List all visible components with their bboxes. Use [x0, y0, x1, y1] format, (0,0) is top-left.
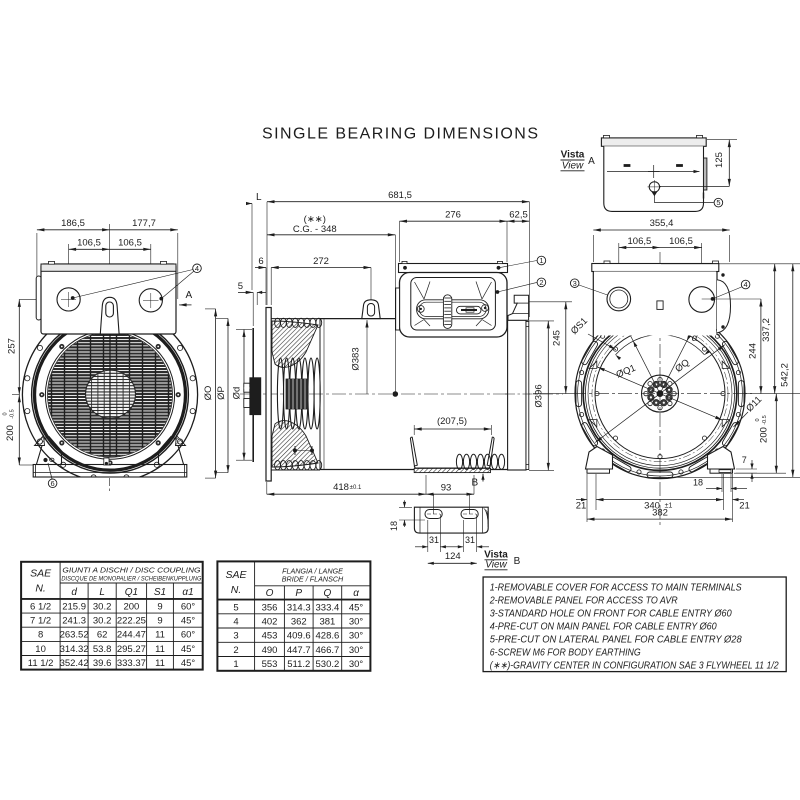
- svg-text:553: 553: [262, 659, 278, 670]
- svg-text:177,7: 177,7: [132, 218, 156, 229]
- svg-text:31: 31: [429, 535, 439, 545]
- svg-text:0: 0: [755, 418, 761, 421]
- svg-text:α1: α1: [182, 587, 193, 598]
- svg-text:B: B: [471, 478, 478, 489]
- svg-text:60°: 60°: [181, 601, 196, 612]
- svg-text:314.3: 314.3: [287, 602, 311, 613]
- svg-text:6-SCREW M6 FOR BODY EARTHING: 6-SCREW M6 FOR BODY EARTHING: [490, 648, 641, 659]
- svg-text:7: 7: [742, 455, 747, 465]
- svg-text:382: 382: [652, 508, 668, 519]
- svg-text:DISCQUE DE MONOPALIER / SCHEIB: DISCQUE DE MONOPALIER / SCHEIBENKUPPLUNG: [61, 576, 201, 583]
- svg-text:d: d: [71, 587, 77, 598]
- svg-text:490: 490: [262, 645, 278, 656]
- svg-text:P: P: [295, 588, 302, 599]
- svg-text:BRIDE / FLANSCH: BRIDE / FLANSCH: [282, 575, 344, 584]
- svg-text:8: 8: [38, 630, 43, 641]
- svg-text:453: 453: [262, 631, 278, 642]
- svg-text:ØP: ØP: [216, 386, 227, 400]
- svg-text:31: 31: [465, 535, 475, 545]
- svg-text:5-PRE-CUT ON LATERAL PANEL FOR: 5-PRE-CUT ON LATERAL PANEL FOR CABLE ENT…: [490, 635, 742, 646]
- svg-text:5: 5: [716, 198, 720, 207]
- svg-text:2: 2: [539, 278, 543, 287]
- svg-text:7 1/2: 7 1/2: [30, 616, 51, 627]
- svg-text:45°: 45°: [181, 644, 196, 655]
- svg-text:GIUNTI A DISCHI / DISC COUPLIN: GIUNTI A DISCHI / DISC COUPLING: [62, 566, 200, 575]
- svg-text:3-STANDARD HOLE ON FRONT FOR C: 3-STANDARD HOLE ON FRONT FOR CABLE ENTRY…: [490, 609, 732, 620]
- svg-text:1: 1: [539, 256, 543, 265]
- svg-text:352.42: 352.42: [60, 658, 89, 669]
- svg-text:362: 362: [291, 617, 307, 628]
- svg-text:A: A: [588, 156, 595, 167]
- svg-text:257: 257: [7, 338, 18, 354]
- svg-text:2: 2: [233, 645, 238, 656]
- svg-text:333.37: 333.37: [117, 658, 146, 669]
- svg-text:124: 124: [445, 551, 461, 562]
- svg-text:45°: 45°: [181, 658, 196, 669]
- svg-text:3: 3: [573, 279, 577, 288]
- svg-text:45°: 45°: [181, 616, 196, 627]
- svg-text:L: L: [99, 587, 105, 598]
- svg-text:263.52: 263.52: [60, 630, 89, 641]
- svg-text:45°: 45°: [349, 602, 364, 613]
- svg-text:Vista: Vista: [561, 150, 585, 161]
- svg-text:62,5: 62,5: [509, 210, 528, 221]
- svg-text:N.: N.: [35, 583, 46, 595]
- svg-text:10: 10: [35, 644, 46, 655]
- svg-text:Ø383: Ø383: [351, 347, 362, 370]
- svg-text:C.G. - 348: C.G. - 348: [293, 224, 337, 235]
- svg-text:L: L: [256, 192, 262, 203]
- svg-text:186,5: 186,5: [61, 218, 85, 229]
- svg-text:18: 18: [693, 478, 703, 488]
- svg-text:View: View: [485, 560, 507, 571]
- svg-text:542,2: 542,2: [779, 363, 790, 387]
- svg-text:511.2: 511.2: [287, 659, 310, 670]
- svg-text:30.2: 30.2: [93, 601, 112, 612]
- svg-text:Q1: Q1: [125, 587, 138, 598]
- svg-text:106,5: 106,5: [628, 236, 652, 247]
- svg-text:4: 4: [744, 280, 748, 289]
- svg-text:272: 272: [313, 256, 329, 267]
- svg-text:93: 93: [441, 483, 452, 494]
- svg-text:106,5: 106,5: [669, 236, 693, 247]
- svg-text:530.2: 530.2: [316, 659, 340, 670]
- svg-text:30°: 30°: [349, 631, 364, 642]
- svg-text:S1: S1: [154, 587, 166, 598]
- svg-text:337,2: 337,2: [761, 318, 772, 342]
- svg-text:Ød: Ød: [232, 387, 243, 400]
- svg-text:106,5: 106,5: [118, 238, 142, 249]
- svg-text:447.7: 447.7: [287, 645, 311, 656]
- svg-text:11: 11: [155, 658, 165, 669]
- svg-text:3: 3: [233, 631, 238, 642]
- svg-text:222.25: 222.25: [117, 616, 146, 627]
- svg-text:355,4: 355,4: [650, 218, 674, 229]
- svg-text:6: 6: [258, 256, 263, 267]
- svg-text:SINGLE BEARING DIMENSIONS: SINGLE BEARING DIMENSIONS: [262, 125, 538, 142]
- svg-text:30°: 30°: [349, 659, 364, 670]
- svg-text:Q: Q: [324, 588, 332, 599]
- svg-text:62: 62: [97, 630, 108, 641]
- svg-text:9: 9: [157, 601, 162, 612]
- svg-text:244.47: 244.47: [117, 630, 146, 641]
- svg-text:α: α: [353, 588, 359, 599]
- svg-text:30.2: 30.2: [93, 616, 112, 627]
- svg-text:241.3: 241.3: [62, 616, 86, 627]
- svg-text:18: 18: [389, 521, 399, 531]
- svg-text:409.6: 409.6: [287, 631, 311, 642]
- svg-text:106,5: 106,5: [77, 238, 101, 249]
- svg-text:0: 0: [3, 412, 9, 415]
- svg-text:ØO: ØO: [203, 386, 214, 401]
- svg-text:Ø396: Ø396: [534, 384, 545, 407]
- svg-text:418: 418: [333, 482, 349, 493]
- svg-text:4-PRE-CUT ON MAIN PANEL FOR CA: 4-PRE-CUT ON MAIN PANEL FOR CABLE ENTRY …: [490, 622, 717, 633]
- svg-text:A: A: [185, 290, 192, 301]
- svg-text:1: 1: [233, 659, 238, 670]
- svg-text:356: 356: [262, 602, 278, 613]
- svg-text:381: 381: [319, 617, 335, 628]
- svg-text:200: 200: [123, 601, 139, 612]
- svg-text:215.9: 215.9: [62, 601, 86, 612]
- svg-text:276: 276: [445, 210, 461, 221]
- svg-text:9: 9: [157, 616, 162, 627]
- svg-text:(207,5): (207,5): [437, 416, 467, 427]
- svg-text:402: 402: [262, 617, 278, 628]
- svg-text:4: 4: [233, 617, 238, 628]
- svg-text:(∗∗)-GRAVITY CENTER IN CONFIGU: (∗∗)-GRAVITY CENTER IN CONFIGURATION SAE…: [490, 661, 779, 672]
- svg-text:4: 4: [195, 264, 199, 273]
- svg-text:11: 11: [155, 644, 165, 655]
- svg-text:21: 21: [739, 501, 750, 512]
- svg-text:428.6: 428.6: [316, 631, 340, 642]
- svg-text:2-REMOVABLE PANEL FOR ACCESS T: 2-REMOVABLE PANEL FOR ACCESS TO AVR: [489, 596, 678, 607]
- svg-text:53.8: 53.8: [93, 644, 112, 655]
- svg-text:125: 125: [714, 152, 725, 168]
- svg-text:21: 21: [576, 501, 587, 512]
- svg-text:30°: 30°: [349, 617, 364, 628]
- svg-text:681,5: 681,5: [388, 190, 412, 201]
- svg-text:SAE: SAE: [225, 569, 247, 581]
- svg-text:200: 200: [759, 427, 770, 443]
- svg-text:295.27: 295.27: [117, 644, 146, 655]
- svg-text:314.32: 314.32: [60, 644, 89, 655]
- svg-text:39.6: 39.6: [93, 658, 112, 669]
- svg-text:60°: 60°: [181, 630, 196, 641]
- svg-text:5: 5: [233, 602, 238, 613]
- svg-text:30°: 30°: [349, 645, 364, 656]
- svg-text:6 1/2: 6 1/2: [30, 601, 51, 612]
- svg-text:N.: N.: [231, 584, 242, 596]
- svg-text:View: View: [562, 161, 584, 172]
- svg-text:±0.1: ±0.1: [350, 485, 362, 491]
- svg-text:466.7: 466.7: [316, 645, 340, 656]
- svg-text:11 1/2: 11 1/2: [28, 658, 54, 669]
- svg-text:SAE: SAE: [30, 568, 52, 580]
- svg-text:O: O: [266, 588, 274, 599]
- svg-text:-0.5: -0.5: [762, 415, 768, 424]
- svg-text:333.4: 333.4: [316, 602, 340, 613]
- svg-text:11: 11: [155, 630, 165, 641]
- svg-text:-0.5: -0.5: [10, 409, 16, 418]
- svg-text:1-REMOVABLE COVER FOR ACCESS: 1-REMOVABLE COVER FOR ACCESS TO MAIN TER…: [490, 583, 742, 594]
- svg-text:6: 6: [51, 479, 55, 488]
- svg-text:245: 245: [552, 330, 563, 346]
- svg-text:5: 5: [238, 281, 243, 292]
- svg-text:200: 200: [5, 425, 16, 441]
- svg-text:244: 244: [747, 343, 758, 359]
- svg-text:B: B: [514, 556, 521, 567]
